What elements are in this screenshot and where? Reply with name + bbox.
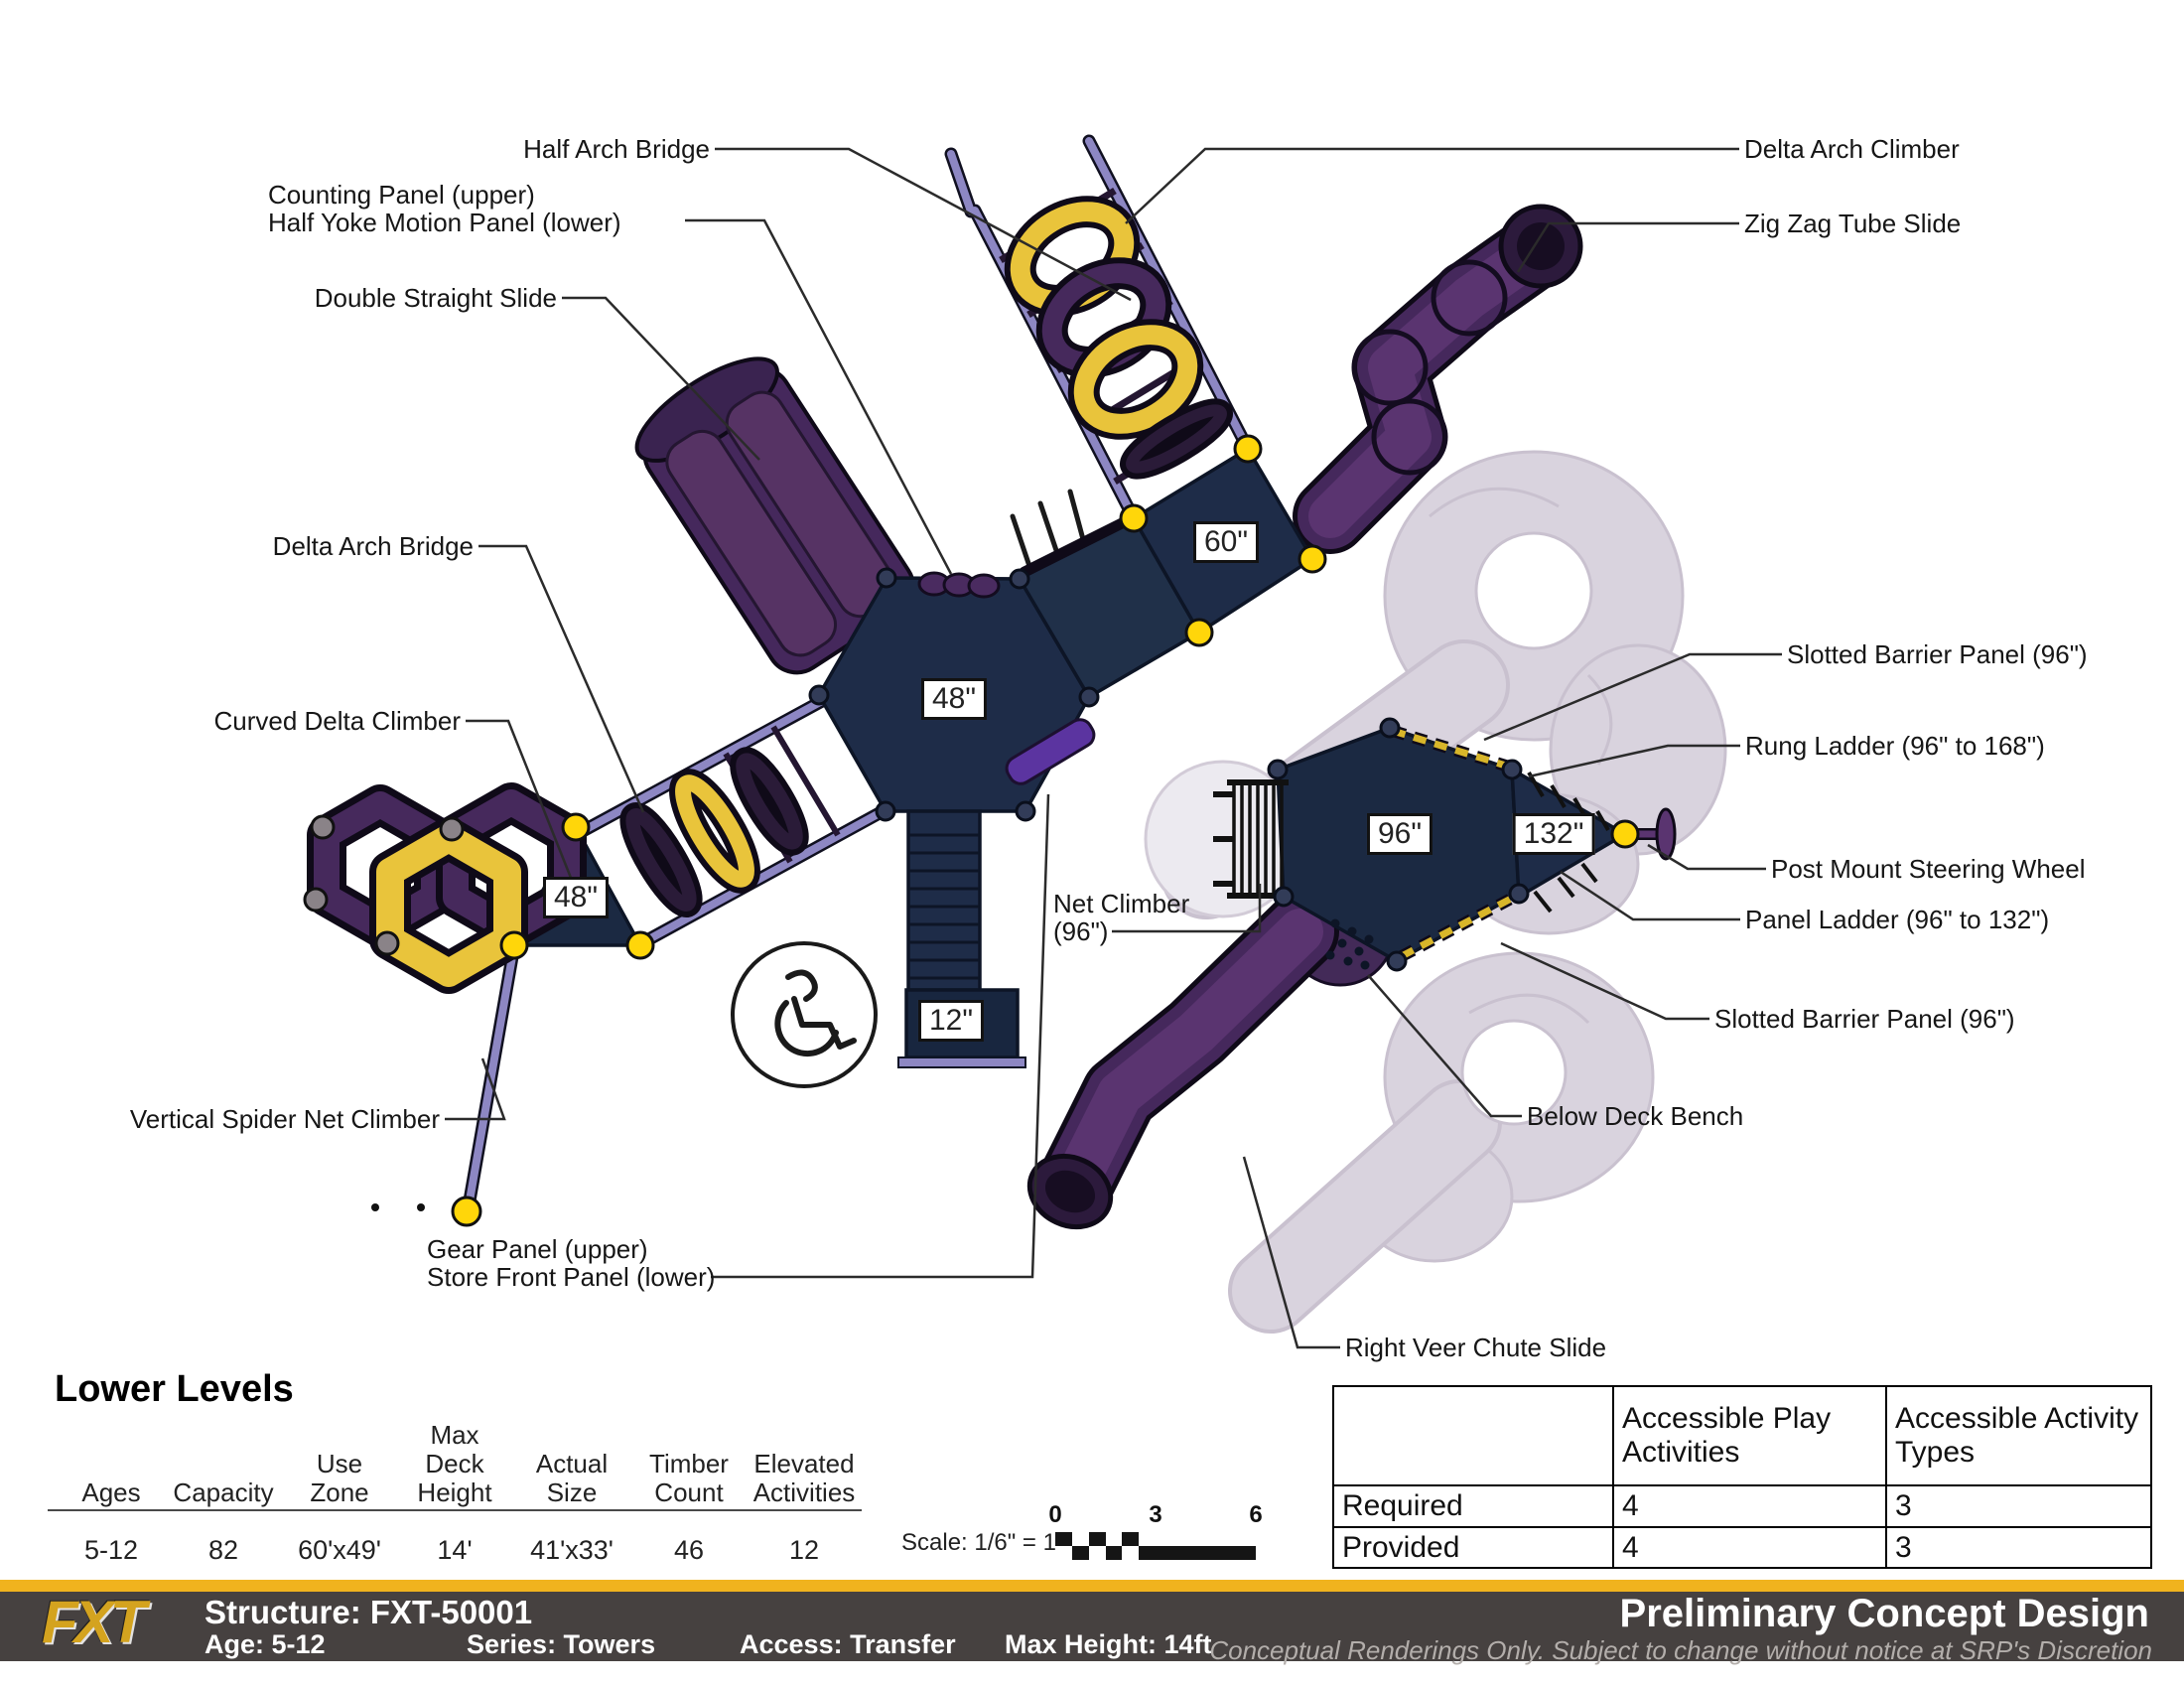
callout-half-arch-bridge: Half Arch Bridge — [523, 135, 710, 163]
callout-slotted-barrier-panel-bottom: Slotted Barrier Panel (96") — [1714, 1005, 2015, 1033]
deck-badge-48-hex: 48" — [921, 678, 987, 720]
stats-divider — [48, 1509, 862, 1511]
deck-badge-60: 60" — [1193, 521, 1259, 563]
callout-net-climber-line2: (96") — [1053, 917, 1189, 945]
deck-badge-12: 12" — [918, 1000, 984, 1042]
callout-counting-panel-line1: Counting Panel (upper) — [268, 181, 621, 209]
wheelchair-icon — [733, 943, 876, 1086]
callout-double-straight-slide: Double Straight Slide — [315, 284, 557, 312]
right-veer-chute-slide-shape — [1019, 931, 1300, 1240]
callout-slotted-barrier-panel-top: Slotted Barrier Panel (96") — [1787, 640, 2088, 668]
acc-row-provided-value2: 3 — [1886, 1527, 2151, 1568]
footer-max-height: Max Height: 14ft — [1005, 1629, 1212, 1660]
scale-label: Scale: 1/6" = 1' — [901, 1529, 1061, 1557]
deck-badge-48-triangle: 48" — [543, 877, 609, 918]
scale-bar — [1055, 1532, 1256, 1560]
scale-tick-6: 6 — [1249, 1501, 1262, 1529]
footer-series: Series: Towers — [467, 1629, 655, 1660]
stats-header-label: Timber Count — [649, 1450, 729, 1507]
footer-structure: Structure: FXT-50001 — [205, 1594, 532, 1631]
delta-arch-bridge-shape — [624, 755, 804, 911]
footer-bar: FXT Structure: FXT-50001 Age: 5-12 Serie… — [0, 1592, 2184, 1661]
stairs — [908, 811, 980, 990]
callout-rung-ladder: Rung Ladder (96" to 168") — [1745, 732, 2045, 760]
stats-value-elevated-activities: 12 — [720, 1535, 888, 1566]
footer-access: Access: Transfer — [740, 1629, 956, 1660]
scale-tick-0: 0 — [1048, 1501, 1061, 1529]
callout-gear-panel: Gear Panel (upper) Store Front Panel (lo… — [427, 1235, 715, 1291]
acc-header-activity-types: Accessible Activity Types — [1886, 1386, 2151, 1485]
acc-row-provided-value1: 4 — [1613, 1527, 1886, 1568]
stair-base — [898, 1057, 1025, 1067]
stats-header-elevated-activities: Elevated Activities — [720, 1424, 888, 1507]
callout-net-climber-line1: Net Climber — [1053, 890, 1189, 917]
stats-header-label: Elevated Activities — [753, 1450, 856, 1507]
callout-curved-delta-climber: Curved Delta Climber — [213, 707, 461, 735]
stats-header-label: Max Deck Height — [417, 1421, 491, 1507]
footer-gold-stripe — [0, 1580, 2184, 1592]
callout-counting-panel: Counting Panel (upper) Half Yoke Motion … — [268, 181, 621, 236]
footer-disclaimer: Conceptual Renderings Only. Subject to c… — [1209, 1635, 2152, 1666]
callout-delta-arch-bridge: Delta Arch Bridge — [273, 532, 474, 560]
acc-row-required-value2: 3 — [1886, 1485, 2151, 1527]
acc-row-required-value1: 4 — [1613, 1485, 1886, 1527]
callout-right-veer-chute-slide: Right Veer Chute Slide — [1345, 1334, 1606, 1361]
callout-below-deck-bench: Below Deck Bench — [1527, 1102, 1743, 1130]
callout-gear-panel-line2: Store Front Panel (lower) — [427, 1263, 715, 1291]
acc-row-provided-label: Provided — [1333, 1527, 1613, 1568]
footer-age: Age: 5-12 — [205, 1629, 326, 1660]
acc-header-play-activities: Accessible Play Activities — [1613, 1386, 1886, 1485]
callout-gear-panel-line1: Gear Panel (upper) — [427, 1235, 715, 1263]
callout-zig-zag-tube-slide: Zig Zag Tube Slide — [1744, 210, 1961, 237]
callout-vertical-spider-net-climber: Vertical Spider Net Climber — [130, 1105, 440, 1133]
acc-header-blank — [1333, 1386, 1613, 1485]
footer-title: Preliminary Concept Design — [1620, 1592, 2149, 1636]
stats-header-label: Ages — [81, 1478, 140, 1507]
deck-badge-132: 132" — [1513, 813, 1595, 855]
callout-post-mount-steering-wheel: Post Mount Steering Wheel — [1771, 855, 2086, 883]
lower-levels-heading: Lower Levels — [55, 1368, 294, 1411]
callout-delta-arch-climber: Delta Arch Climber — [1744, 135, 1960, 163]
deck-badge-96: 96" — [1367, 813, 1433, 855]
fxt-logo: FXT — [42, 1588, 142, 1656]
concept-design-sheet: Half Arch Bridge Counting Panel (upper) … — [0, 0, 2184, 1688]
callout-panel-ladder: Panel Ladder (96" to 132") — [1745, 906, 2049, 933]
stats-header-label: Actual Size — [536, 1450, 608, 1507]
accessibility-table: Accessible Play Activities Accessible Ac… — [1332, 1385, 2152, 1569]
callout-net-climber: Net Climber (96") — [1053, 890, 1189, 945]
acc-row-required-label: Required — [1333, 1485, 1613, 1527]
stats-header-label: Use Zone — [310, 1450, 368, 1507]
callout-counting-panel-line2: Half Yoke Motion Panel (lower) — [268, 209, 621, 236]
scale-tick-3: 3 — [1149, 1501, 1161, 1529]
